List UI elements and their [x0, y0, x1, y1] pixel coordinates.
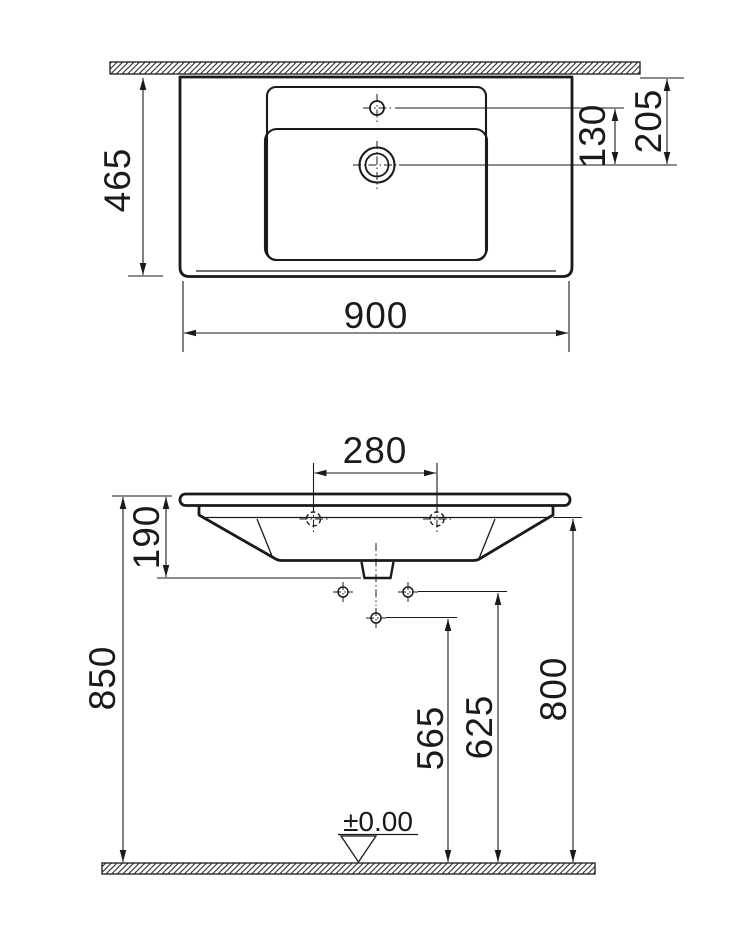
elevation-view: 280 190 850 565 625	[82, 430, 595, 874]
washbasin-technical-drawing: 465 900 130 205	[0, 0, 729, 927]
dim-label-205: 205	[628, 89, 669, 154]
dim-label-900: 900	[344, 295, 409, 336]
floor-hatch	[102, 863, 595, 874]
floor-level-label: ±0.00	[343, 806, 413, 837]
floor-level-marker: ±0.00	[338, 806, 418, 862]
dim-underside-height-800: 800	[533, 518, 582, 863]
dim-label-850: 850	[82, 646, 123, 711]
bracket-hole-crosshair	[333, 582, 353, 602]
dim-hole-spacing-280: 280	[314, 430, 438, 511]
dim-depth-465: 465	[97, 78, 163, 276]
dim-label-280: 280	[343, 430, 408, 471]
bracket-hole-crosshair	[398, 582, 418, 602]
dim-label-565: 565	[410, 706, 451, 771]
dim-tap-to-drain-130: 130	[572, 104, 615, 169]
countertop-rim	[180, 494, 570, 506]
dim-label-465: 465	[97, 148, 138, 213]
outlet-hole-crosshair	[366, 608, 386, 628]
plan-view: 465 900 130 205	[97, 62, 684, 352]
dim-rim-to-outlet-190: 190	[126, 497, 361, 578]
dim-label-800: 800	[533, 657, 574, 722]
outlet-hole	[366, 608, 386, 628]
level-triangle	[341, 836, 376, 862]
drain-trap	[362, 562, 394, 578]
dim-wall-to-drain-205: 205	[628, 78, 684, 164]
wall-section-hatch	[110, 62, 640, 74]
dim-label-625: 625	[459, 695, 500, 760]
bracket-hole-left	[333, 582, 353, 602]
basin-body-outline	[199, 506, 553, 561]
bracket-hole-right	[398, 582, 418, 602]
dim-label-190: 190	[126, 505, 167, 570]
inner-bowl-outline	[265, 129, 487, 260]
dim-label-130: 130	[572, 104, 613, 169]
drawing-sheet: 465 900 130 205	[0, 0, 729, 927]
dim-width-900: 900	[183, 281, 569, 352]
faucet-hole-crosshair	[363, 94, 391, 122]
